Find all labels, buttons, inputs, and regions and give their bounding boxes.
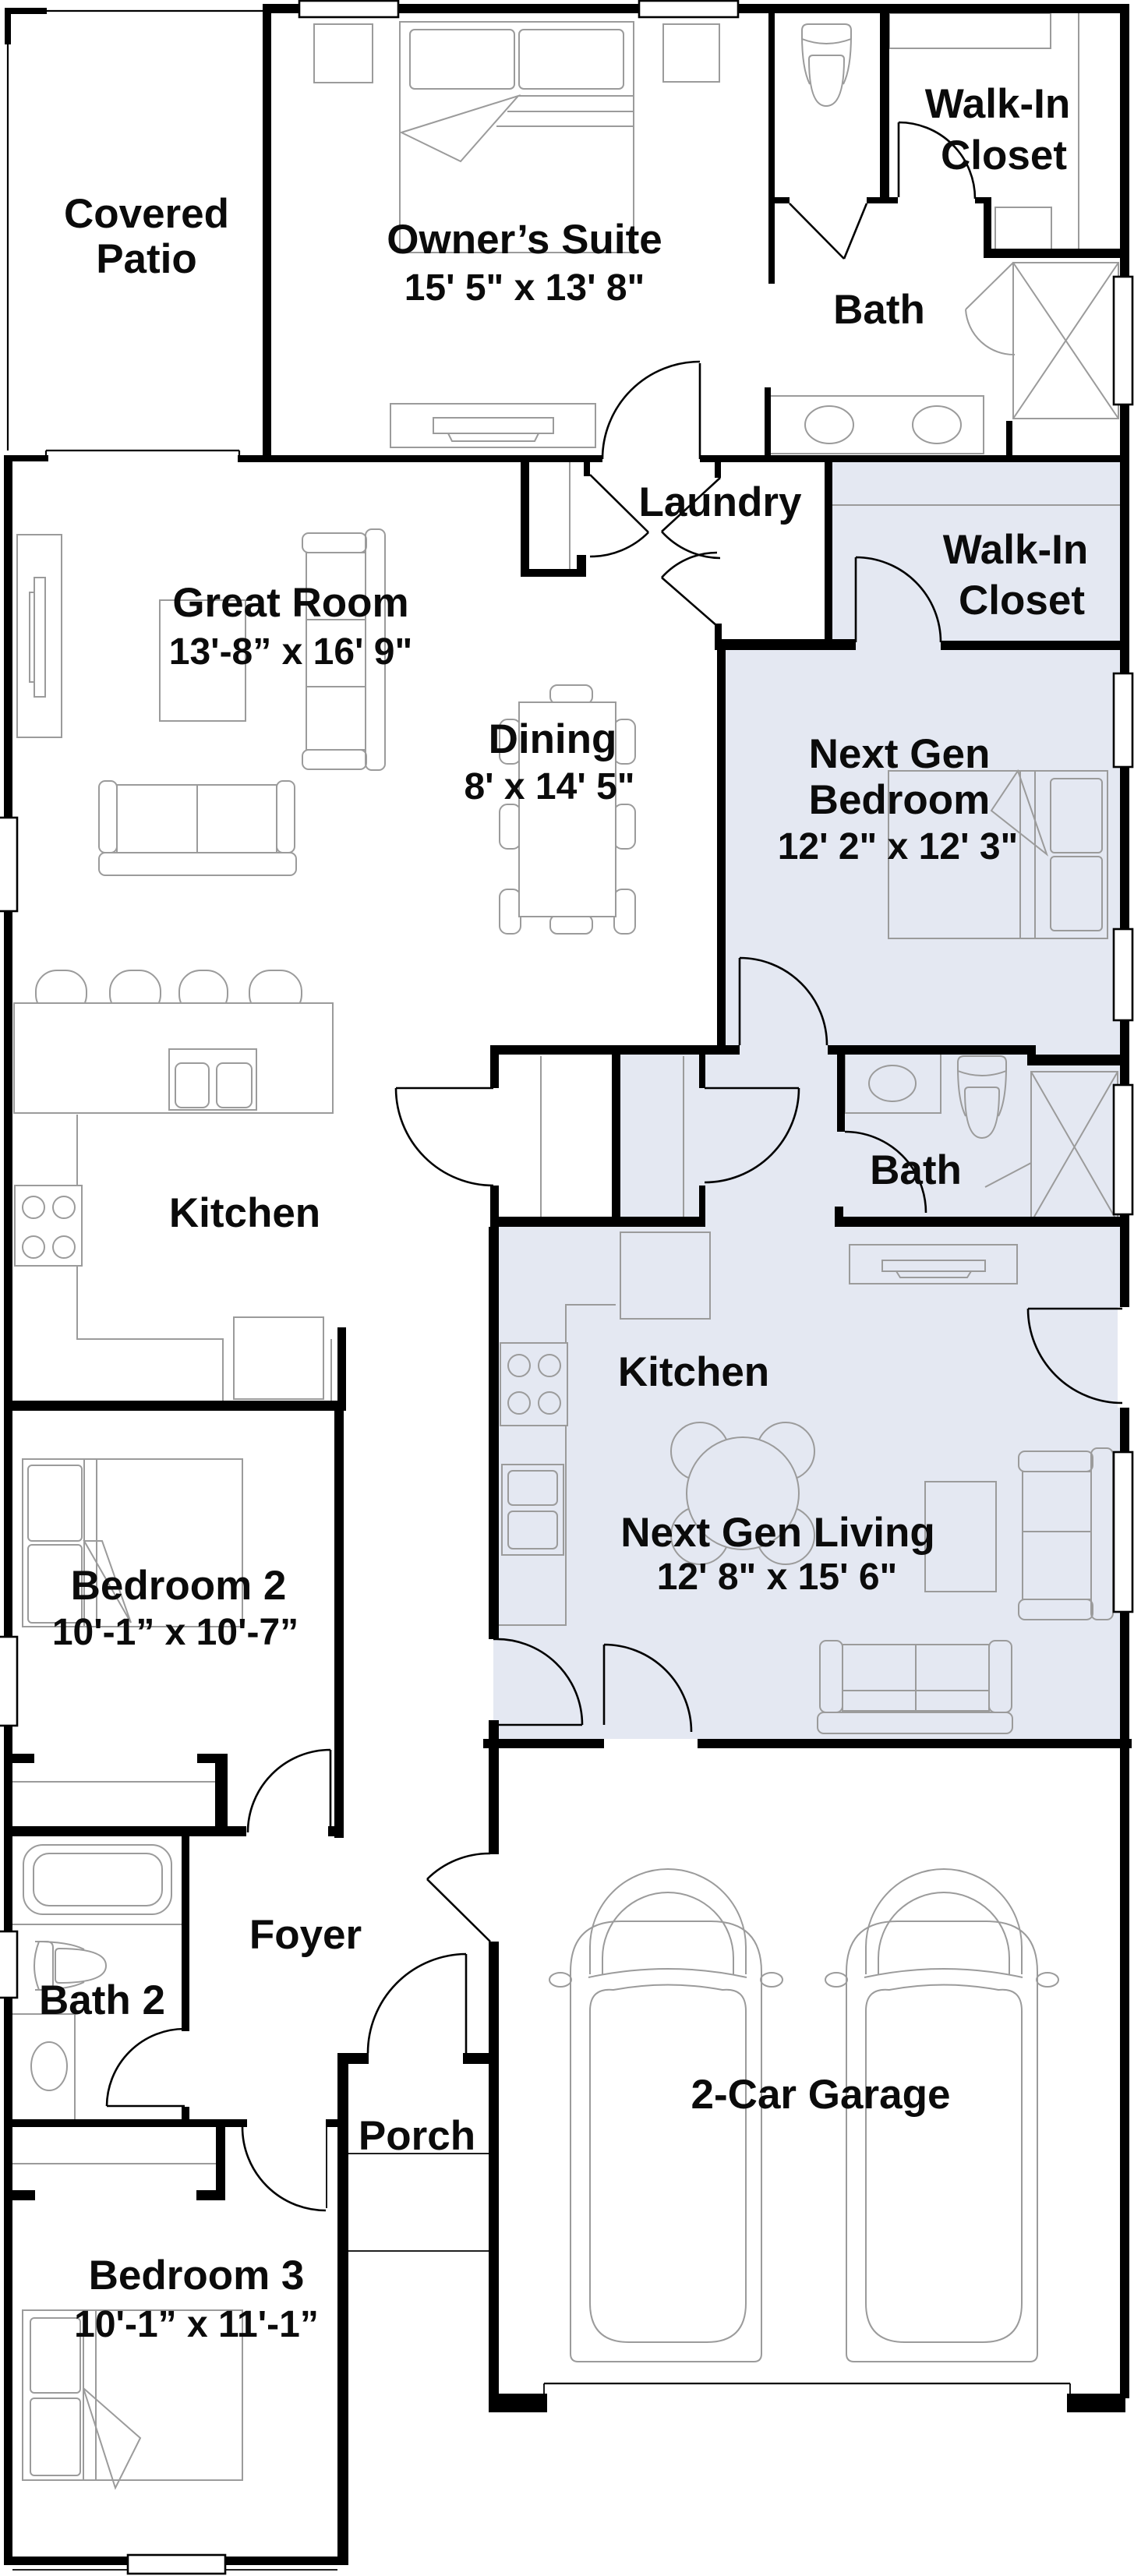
svg-text:Great Room: Great Room (172, 580, 408, 626)
svg-text:15' 5" x 13' 8": 15' 5" x 13' 8" (404, 267, 645, 309)
svg-text:Patio: Patio (96, 236, 197, 282)
svg-text:Next Gen: Next Gen (809, 731, 991, 777)
svg-text:Bath: Bath (833, 287, 925, 333)
svg-text:Walk-In: Walk-In (925, 81, 1070, 127)
svg-text:Porch: Porch (359, 2113, 475, 2159)
svg-text:Bedroom: Bedroom (809, 777, 991, 823)
svg-text:Bath: Bath (870, 1147, 962, 1193)
svg-text:10'-1” x 11'-1”: 10'-1” x 11'-1” (74, 2304, 319, 2345)
svg-text:Owner’s Suite: Owner’s Suite (387, 217, 662, 263)
svg-text:Closet: Closet (959, 578, 1085, 624)
svg-text:2-Car Garage: 2-Car Garage (691, 2072, 951, 2118)
svg-text:Bath 2: Bath 2 (39, 1977, 165, 2023)
svg-text:10'-1” x 10'-7”: 10'-1” x 10'-7” (52, 1612, 299, 1653)
svg-text:12' 8" x 15' 6": 12' 8" x 15' 6" (657, 1557, 898, 1598)
svg-text:Dining: Dining (489, 716, 617, 762)
svg-text:Next Gen Living: Next Gen Living (620, 1510, 934, 1556)
svg-text:Bedroom 2: Bedroom 2 (71, 1563, 287, 1609)
svg-text:Bedroom 3: Bedroom 3 (89, 2253, 305, 2299)
svg-text:Closet: Closet (941, 133, 1067, 178)
svg-text:Covered: Covered (64, 191, 229, 237)
svg-text:13'-8” x 16' 9": 13'-8” x 16' 9" (169, 631, 412, 673)
svg-text:12' 2" x 12' 3": 12' 2" x 12' 3" (778, 826, 1019, 868)
svg-text:Kitchen: Kitchen (169, 1190, 320, 1236)
svg-text:Kitchen: Kitchen (618, 1349, 769, 1395)
svg-text:Laundry: Laundry (638, 479, 802, 525)
svg-text:Foyer: Foyer (249, 1912, 362, 1958)
svg-text:Walk-In: Walk-In (943, 527, 1088, 573)
svg-text:8' x 14' 5": 8' x 14' 5" (464, 766, 634, 807)
